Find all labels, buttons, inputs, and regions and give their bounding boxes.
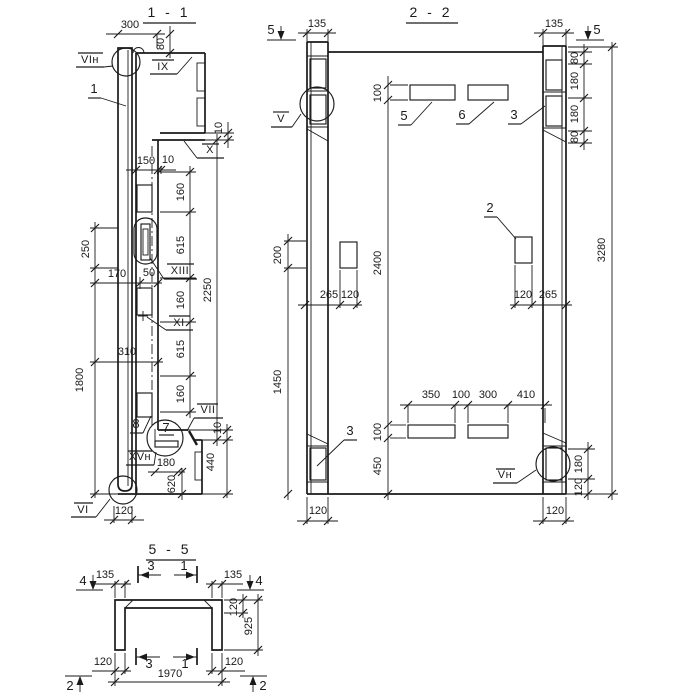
- dim-120-col-right: 120: [546, 505, 564, 517]
- node-label-vn: Vн: [498, 469, 512, 481]
- detail-circle-v: [300, 87, 334, 121]
- dim-10-step-bottom: 10: [212, 422, 224, 434]
- section-mark-4-left: 4: [79, 573, 86, 588]
- dim-100-bottom: 100: [372, 423, 384, 441]
- blueprint-page: 1 - 1: [0, 0, 700, 700]
- rib-embed: [310, 448, 326, 480]
- dim-135-left: 135: [308, 18, 326, 30]
- dim-120-bottom-left: 120: [94, 656, 112, 668]
- section-mark-4-right: 4: [255, 573, 262, 588]
- dim-160-2: 160: [175, 291, 187, 309]
- view-2-2-title: 2 - 2: [409, 4, 452, 20]
- node-label-vin: VIн: [81, 54, 99, 66]
- embed-plate: [408, 425, 455, 438]
- view-5-5-title: 5 - 5: [148, 541, 191, 557]
- section-mark-3-bottom: 3: [145, 656, 152, 671]
- dim-450: 450: [372, 457, 384, 475]
- part-label-7: 7: [162, 420, 169, 435]
- section-mark-1-top: 1: [180, 558, 187, 573]
- part-label-6: 6: [458, 107, 465, 122]
- part-label-8: 8: [132, 416, 139, 431]
- embed-plate: [137, 393, 152, 417]
- dims-1-1: 300 80 10 150 10 160 615 160 615 160 225…: [74, 19, 234, 524]
- dim-300: 300: [121, 19, 139, 31]
- node-label-xvn: XVн: [129, 451, 151, 463]
- dim-80: 80: [155, 38, 167, 50]
- rib-embed: [310, 59, 326, 88]
- node-label-v: V: [277, 113, 285, 125]
- dim-170: 170: [108, 268, 126, 280]
- part-label-3-top: 3: [510, 107, 517, 122]
- notch: [197, 98, 205, 126]
- dim-2250: 2250: [202, 278, 214, 302]
- dims-5-5: 4 4 135 135 3 1 120 925 120: [65, 558, 267, 693]
- dim-410: 410: [517, 389, 535, 401]
- part-label-5: 5: [400, 108, 407, 123]
- view-1-1: 1 - 1: [71, 4, 234, 524]
- dim-180-right: 180: [573, 455, 585, 473]
- dim-925: 925: [243, 617, 255, 635]
- section-2-2-outline: [300, 42, 570, 494]
- embed-plate: [515, 237, 532, 263]
- dim-50: 50: [143, 267, 155, 279]
- detail-circle-vn: [536, 447, 570, 481]
- dim-120-left: 120: [341, 289, 359, 301]
- dim-120-bottom-right: 120: [225, 656, 243, 668]
- dim-615-1: 615: [175, 236, 187, 254]
- notch: [195, 452, 202, 480]
- dim-3280: 3280: [596, 238, 608, 262]
- dim-2400: 2400: [372, 251, 384, 275]
- rib-embed: [546, 60, 562, 90]
- dim-200: 200: [272, 246, 284, 264]
- dim-180-top2: 180: [569, 105, 581, 123]
- node-label-vi: VI: [77, 504, 88, 516]
- section-mark-2-left: 2: [66, 678, 73, 693]
- rib-embed: [546, 96, 562, 126]
- section-mark-2-right: 2: [259, 678, 266, 693]
- part-label-2: 2: [486, 200, 493, 215]
- part-label-3-bottom: 3: [346, 423, 353, 438]
- dim-265-left: 265: [320, 289, 338, 301]
- node-label-ix: IX: [157, 61, 169, 73]
- node-label-xiii: XIII: [171, 265, 190, 277]
- dim-120-right: 120: [514, 289, 532, 301]
- dim-120-top: 120: [228, 598, 240, 616]
- embed-plate: [340, 242, 357, 268]
- dim-620: 620: [166, 475, 178, 493]
- dim-135-left: 135: [96, 569, 114, 581]
- dim-160-1: 160: [175, 183, 187, 201]
- dim-100-mid: 100: [452, 389, 470, 401]
- dim-135-right: 135: [224, 569, 242, 581]
- embed-plate: [468, 425, 508, 438]
- dim-180: 180: [157, 457, 175, 469]
- dim-80-top2: 80: [569, 131, 581, 143]
- dim-300: 300: [479, 389, 497, 401]
- dim-10-step-top: 10: [213, 122, 225, 134]
- slot-opening: [134, 218, 157, 264]
- dim-120-bottom: 120: [115, 505, 133, 517]
- dim-310: 310: [118, 346, 136, 358]
- view-5-5: 5 - 5 4 4 135 135 3 1: [65, 541, 267, 693]
- dim-615-2: 615: [175, 340, 187, 358]
- dim-1800: 1800: [74, 368, 86, 392]
- node-label-xi: XI: [173, 317, 184, 329]
- dim-150: 150: [137, 155, 155, 167]
- dim-265-right: 265: [539, 289, 557, 301]
- node-label-vii: VII: [201, 404, 216, 416]
- part-label-1: 1: [90, 81, 97, 96]
- node-label-x: X: [206, 144, 214, 156]
- view-2-2: 2 - 2: [267, 4, 618, 525]
- dim-120-right-bottom: 120: [573, 478, 585, 496]
- section-mark-5-right: 5: [593, 22, 600, 37]
- dim-120-col-left: 120: [309, 505, 327, 517]
- dim-100-top: 100: [372, 84, 384, 102]
- embed-plate: [137, 185, 152, 212]
- dim-250: 250: [80, 240, 92, 258]
- embed-plate: [410, 85, 455, 100]
- section-mark-1-bottom: 1: [181, 656, 188, 671]
- embed-plate: [468, 85, 508, 100]
- dim-1970: 1970: [158, 668, 182, 680]
- embed-plate: [137, 288, 152, 315]
- dim-1450: 1450: [272, 370, 284, 394]
- dim-10-web: 10: [162, 154, 174, 166]
- section-5-5-outline: [115, 600, 222, 650]
- dim-135-right: 135: [545, 18, 563, 30]
- dim-160-3: 160: [175, 385, 187, 403]
- section-mark-5-left: 5: [267, 22, 274, 37]
- drawing-canvas: 1 - 1: [0, 0, 700, 700]
- dim-350: 350: [422, 389, 440, 401]
- notch: [197, 63, 205, 91]
- dim-80-top: 80: [569, 52, 581, 64]
- dim-180-top1: 180: [569, 72, 581, 90]
- dim-440: 440: [205, 453, 217, 471]
- view-1-1-title: 1 - 1: [147, 4, 190, 20]
- section-mark-3-top: 3: [147, 558, 154, 573]
- rib-embed: [546, 448, 562, 480]
